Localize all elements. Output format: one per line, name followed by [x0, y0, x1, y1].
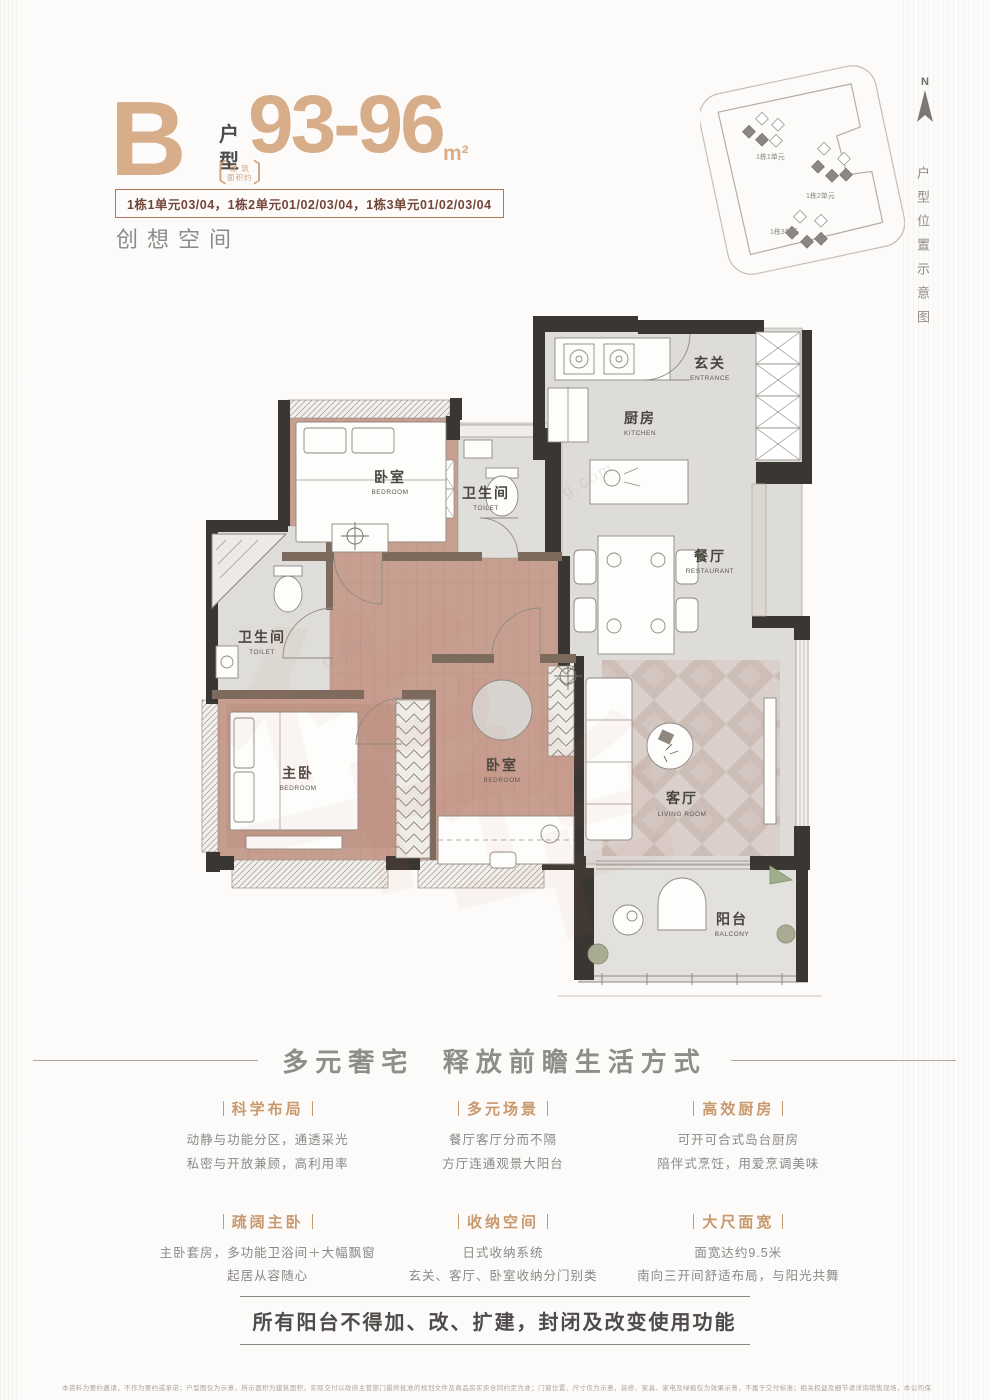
window-master-bottom — [232, 860, 388, 888]
sofa — [586, 678, 632, 840]
feature-line: 方厅连通观景大阳台 — [385, 1153, 620, 1177]
tv-cabinet — [764, 698, 776, 824]
feature-title: 收纳空间 — [467, 1211, 539, 1232]
feature-grid: 科学布局 动静与功能分区，通透采光私密与开放兼顾，高利用率 多元场景 餐厅客厅分… — [150, 1098, 856, 1289]
title-bar — [458, 1101, 459, 1116]
window-toilet-upper — [458, 425, 544, 437]
room-label-restaurant-cn: 餐厅 — [693, 548, 726, 564]
feature-line: 主卧套房，多功能卫浴间＋大幅飘窗 — [150, 1242, 385, 1266]
unit-type-char-1: 户 — [219, 122, 239, 149]
window-bedroom-top — [288, 400, 450, 418]
features-heading-text: 多元奢宅 释放前瞻生活方式 — [282, 1042, 706, 1079]
feature-item-width: 大尺面宽 面宽达约9.5米南向三开间舒适布局，与阳光共舞 — [621, 1211, 856, 1290]
compass-n-label: N — [912, 76, 938, 88]
room-label-master-en: BEDROOM — [279, 785, 316, 792]
dining-table — [598, 536, 674, 654]
title-bar — [693, 1101, 694, 1116]
kitchen-island — [590, 460, 688, 504]
feature-item-master: 疏阔主卧 主卧套房，多功能卫浴间＋大幅飘窗起居从容随心 — [150, 1211, 385, 1290]
feature-line: 餐厅客厅分而不隔 — [385, 1129, 620, 1153]
room-label-kitchen-cn: 厨房 — [624, 410, 656, 426]
site-location-map: 1栋1单元 1栋2单元 1栋3单元 — [700, 62, 905, 282]
title-bar — [782, 1214, 783, 1229]
feature-line: 日式收纳系统 — [385, 1242, 620, 1266]
wall-dining-right — [752, 484, 766, 616]
window-master-left — [202, 700, 218, 852]
features-heading: 多元奢宅 释放前瞻生活方式 — [60, 1042, 929, 1079]
desk-bedroom-top — [332, 524, 388, 552]
round-rug-bedroom2 — [472, 680, 532, 740]
room-label-balcony-en: BALCONY — [715, 931, 750, 938]
feature-line: 南向三开间舒适布局，与阳光共舞 — [621, 1265, 856, 1289]
floor-plan: 玄关 ENTRANCE 厨房 KITCHEN 卫生间 TOILET 餐厅 RES… — [150, 268, 850, 1013]
room-label-living-en: LIVING ROOM — [658, 811, 707, 818]
site-map-caption: 户型位置示意图 — [913, 166, 932, 334]
feature-title: 疏阔主卧 — [232, 1211, 304, 1232]
site-cluster-1: 1栋1单元 — [743, 112, 785, 161]
title-bar — [312, 1101, 313, 1116]
area-unit: m² — [443, 142, 469, 166]
site-inner-boundary — [718, 83, 883, 255]
room-label-restaurant-en: RESTAURANT — [686, 568, 735, 575]
balcony-notice: 所有阳台不得加、改、扩建，封闭及改变使用功能 — [240, 1296, 750, 1345]
compass-arrow-icon — [912, 88, 938, 124]
compass: N — [912, 76, 938, 127]
room-label-toilet-upper-en: TOILET — [473, 505, 499, 512]
room-label-toilet-upper-cn: 卫生间 — [462, 485, 510, 501]
unit-type-letter: B — [110, 86, 187, 192]
feature-title: 高效厨房 — [702, 1098, 774, 1119]
feature-line: 玄关、客厅、卧室收纳分门别类 — [385, 1265, 620, 1289]
wardrobe-master — [396, 700, 430, 858]
room-label-master-cn: 主卧 — [282, 765, 314, 781]
feature-item-storage: 收纳空间 日式收纳系统玄关、客厅、卧室收纳分门别类 — [385, 1211, 620, 1290]
feature-line: 起居从容随心 — [150, 1265, 385, 1289]
room-label-bedroom2-cn: 卧室 — [486, 757, 518, 773]
title-bar — [782, 1101, 783, 1116]
site-cluster-2: 1栋2单元 — [806, 142, 852, 200]
building-units-box: 1栋1单元03/04，1栋2单元01/02/03/04，1栋3单元01/02/0… — [115, 189, 504, 218]
feature-item-kitchen: 高效厨房 可开可合式岛台厨房陪伴式烹饪，用爱烹调美味 — [621, 1098, 856, 1177]
balcony-railing — [558, 973, 822, 996]
room-label-balcony-cn: 阳台 — [716, 911, 748, 927]
title-bar — [223, 1101, 224, 1116]
title-bar — [223, 1214, 224, 1229]
room-label-kitchen-en: KITCHEN — [624, 430, 656, 437]
room-label-entrance-en: ENTRANCE — [690, 375, 730, 382]
heading-rule-right — [731, 1060, 956, 1061]
bracket-left: 〔 — [201, 160, 227, 186]
entrance-closet — [756, 332, 800, 460]
room-label-living-cn: 客厅 — [665, 790, 698, 806]
feature-title: 多元场景 — [467, 1098, 539, 1119]
area-range: 93-96 — [248, 84, 443, 166]
feature-line: 面宽达约9.5米 — [621, 1242, 856, 1266]
title-bar — [547, 1214, 548, 1229]
site-cluster-2-label: 1栋2单元 — [806, 191, 835, 200]
coffee-table — [647, 723, 693, 769]
desk-bedroom2 — [438, 816, 574, 868]
title-bar — [458, 1214, 459, 1229]
window-living-right — [796, 628, 808, 834]
area-note-line1: 建 筑 — [230, 164, 250, 173]
room-label-toilet-left-en: TOILET — [249, 649, 275, 656]
slogan-text: 创想空间 — [116, 222, 240, 254]
room-label-bedroom-top-cn: 卧室 — [374, 469, 406, 485]
site-cluster-3-label: 1栋3单元 — [770, 227, 799, 236]
room-label-toilet-left-cn: 卫生间 — [238, 629, 286, 645]
title-bar — [547, 1101, 548, 1116]
area-note-line2: 面积约 — [227, 173, 253, 182]
fine-print-disclaimer: 本资料为要约邀请，不作为要约或承诺；户型图仅为示意，所示面积为建筑面积，实际交付… — [62, 1382, 931, 1392]
scan-edge-artifact-left — [0, 0, 20, 1400]
feature-line: 私密与开放兼顾，高利用率 — [150, 1153, 385, 1177]
feature-item-scenes: 多元场景 餐厅客厅分而不隔方厅连通观景大阳台 — [385, 1098, 620, 1177]
feature-title: 科学布局 — [232, 1098, 304, 1119]
room-label-entrance-cn: 玄关 — [694, 355, 726, 371]
feature-item-layout: 科学布局 动静与功能分区，通透采光私密与开放兼顾，高利用率 — [150, 1098, 385, 1177]
feature-line: 动静与功能分区，通透采光 — [150, 1129, 385, 1153]
room-label-bedroom-top-en: BEDROOM — [371, 489, 408, 496]
title-bar — [693, 1214, 694, 1229]
feature-line: 可开可合式岛台厨房 — [621, 1129, 856, 1153]
feature-title: 大尺面宽 — [702, 1211, 774, 1232]
floorplan-poster-page: B 户 型 〔 建 筑 面积约 〕 93-96 m² 1栋1单元03/04，1栋… — [0, 0, 989, 1400]
bed-bench — [246, 836, 342, 849]
heading-rule-left — [33, 1060, 258, 1061]
room-label-bedroom2-en: BEDROOM — [483, 777, 520, 784]
site-cluster-1-label: 1栋1单元 — [756, 152, 785, 161]
feature-line: 陪伴式烹饪，用爱烹调美味 — [621, 1153, 856, 1177]
kitchen-counter — [555, 338, 670, 380]
title-bar — [312, 1214, 313, 1229]
